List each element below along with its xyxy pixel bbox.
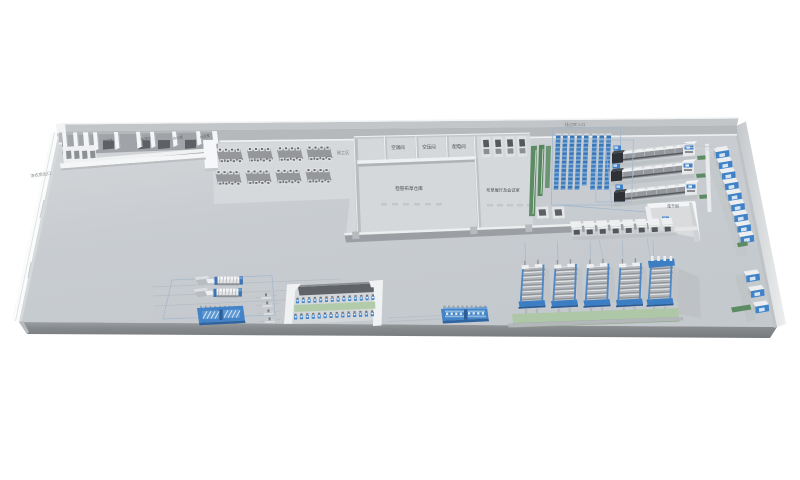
svg-text:配电间: 配电间 xyxy=(452,143,465,150)
svg-text:检管布草仓库: 检管布草仓库 xyxy=(395,185,423,192)
svg-text:炫干间: 炫干间 xyxy=(667,204,679,209)
svg-text:布草展厅及会议室: 布草展厅及会议室 xyxy=(486,187,520,194)
svg-text:空调间: 空调间 xyxy=(391,144,404,151)
svg-text:线边库入口: 线边库入口 xyxy=(565,121,586,128)
svg-text:候工区: 候工区 xyxy=(337,149,350,156)
svg-text:空压间: 空压间 xyxy=(422,143,435,150)
